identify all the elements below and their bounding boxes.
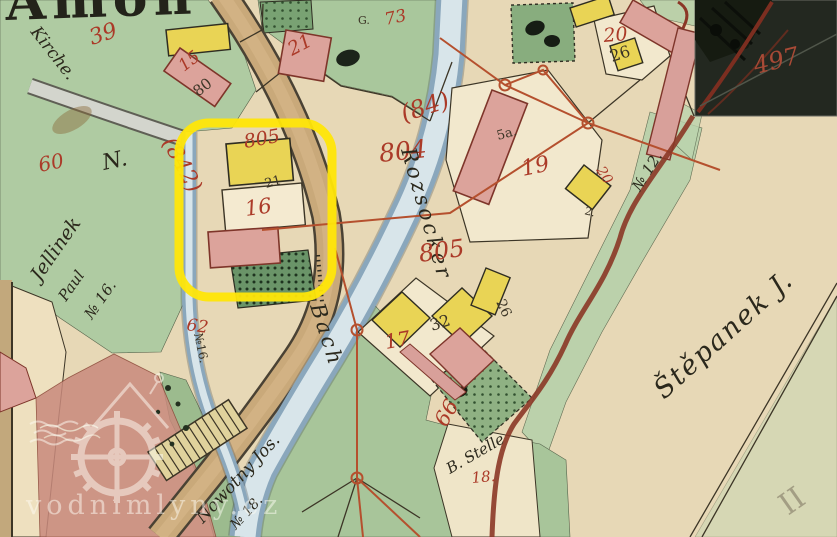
label-17: 17 [383,326,413,354]
label-16: 16 [243,193,273,220]
map-canvas[interactable]: Amon 39 60 (842) 805 804 (84) 73 G. 15 8… [0,0,837,537]
map-viewport: Amon 39 60 (842) 805 804 (84) 73 G. 15 8… [0,0,837,537]
watermark-text: vodnimlyny.cz [25,490,282,521]
inset-thumbnail[interactable]: 497 [695,0,837,116]
label-G: G. [358,14,370,27]
label-18: 18. [471,467,496,487]
label-nmark: N. [99,146,129,176]
